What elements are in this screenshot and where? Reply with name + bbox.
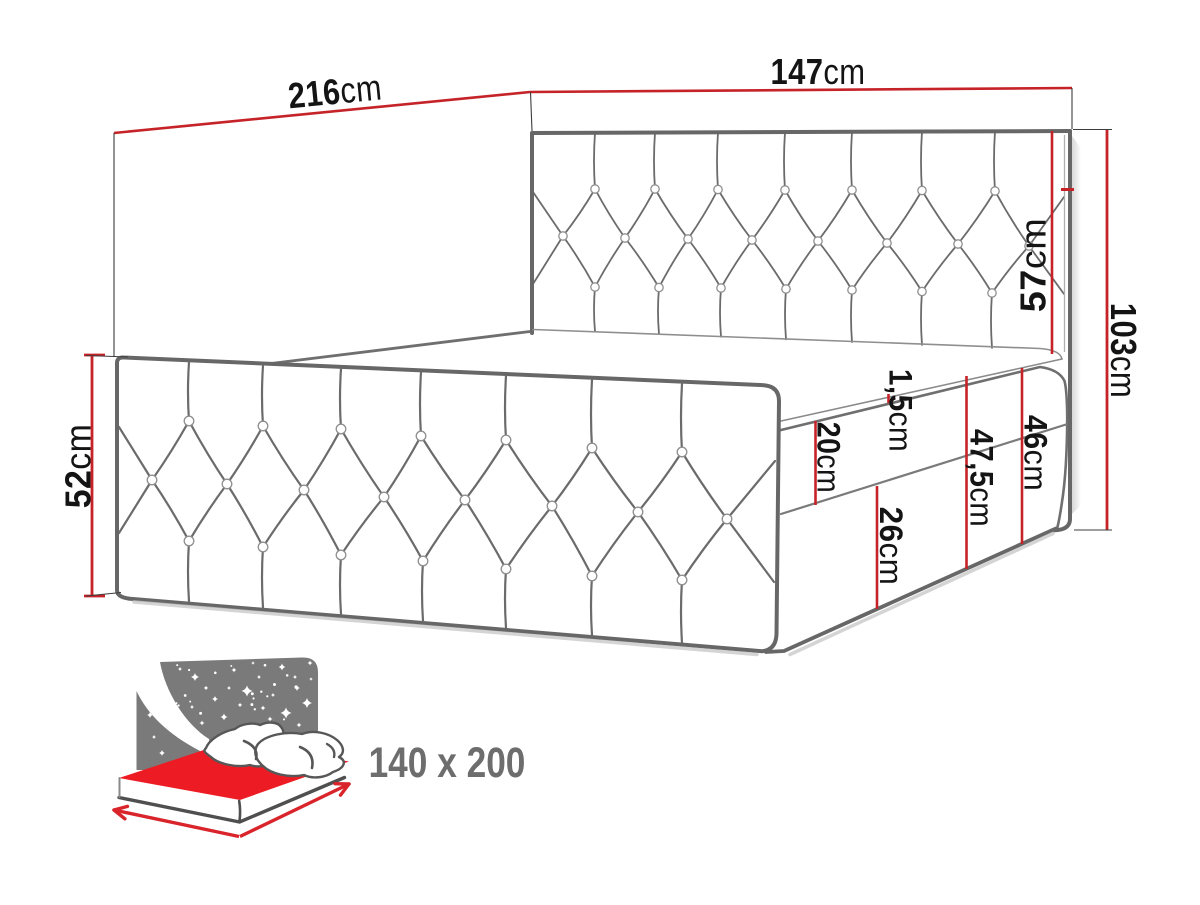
svg-text:20cm: 20cm	[811, 422, 846, 493]
svg-text:147cm: 147cm	[770, 52, 865, 92]
svg-text:47,5cm: 47,5cm	[963, 429, 999, 527]
svg-text:52cm: 52cm	[58, 424, 98, 509]
svg-text:46cm: 46cm	[1018, 415, 1054, 491]
svg-text:26cm: 26cm	[873, 507, 909, 586]
svg-text:57cm: 57cm	[1013, 218, 1053, 313]
svg-text:103cm: 103cm	[1103, 303, 1143, 398]
svg-text:1,5cm: 1,5cm	[883, 369, 919, 452]
svg-text:140 x 200: 140 x 200	[369, 739, 526, 787]
